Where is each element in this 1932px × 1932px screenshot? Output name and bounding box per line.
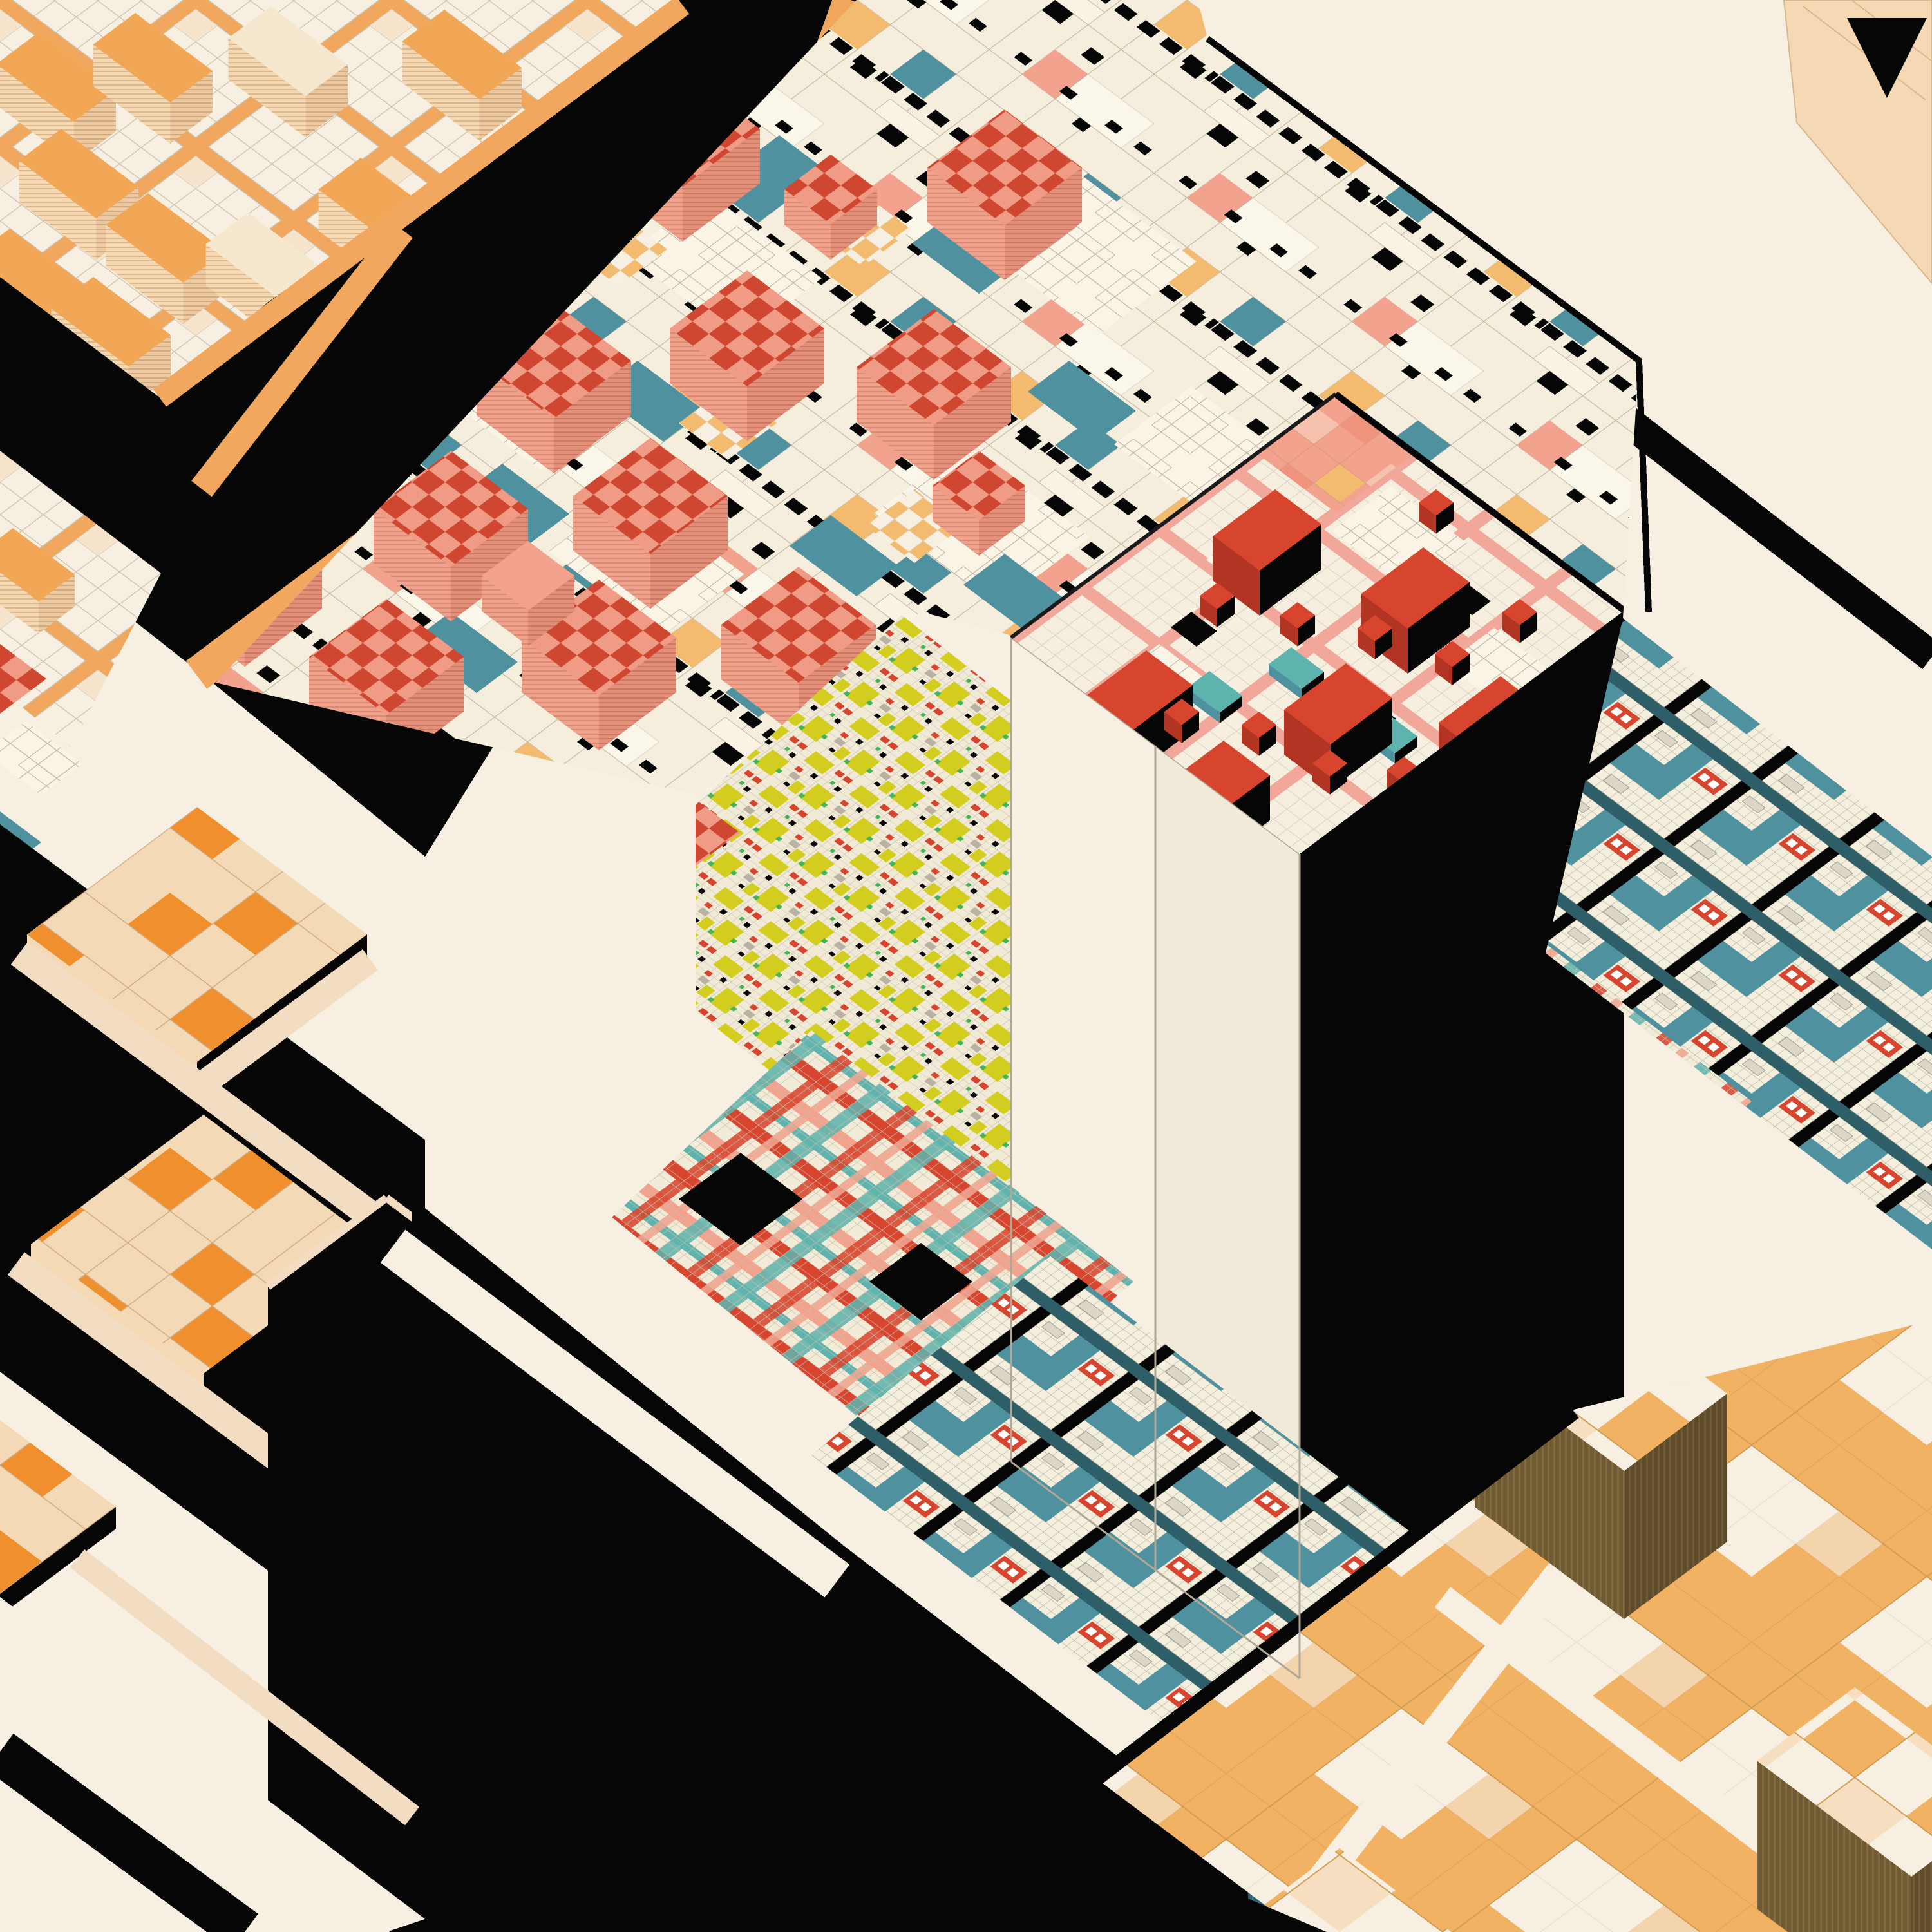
isometric-generative-city-artwork (0, 0, 1932, 1932)
artwork-canvas (0, 0, 1932, 1932)
scene-root (0, 0, 1932, 1932)
